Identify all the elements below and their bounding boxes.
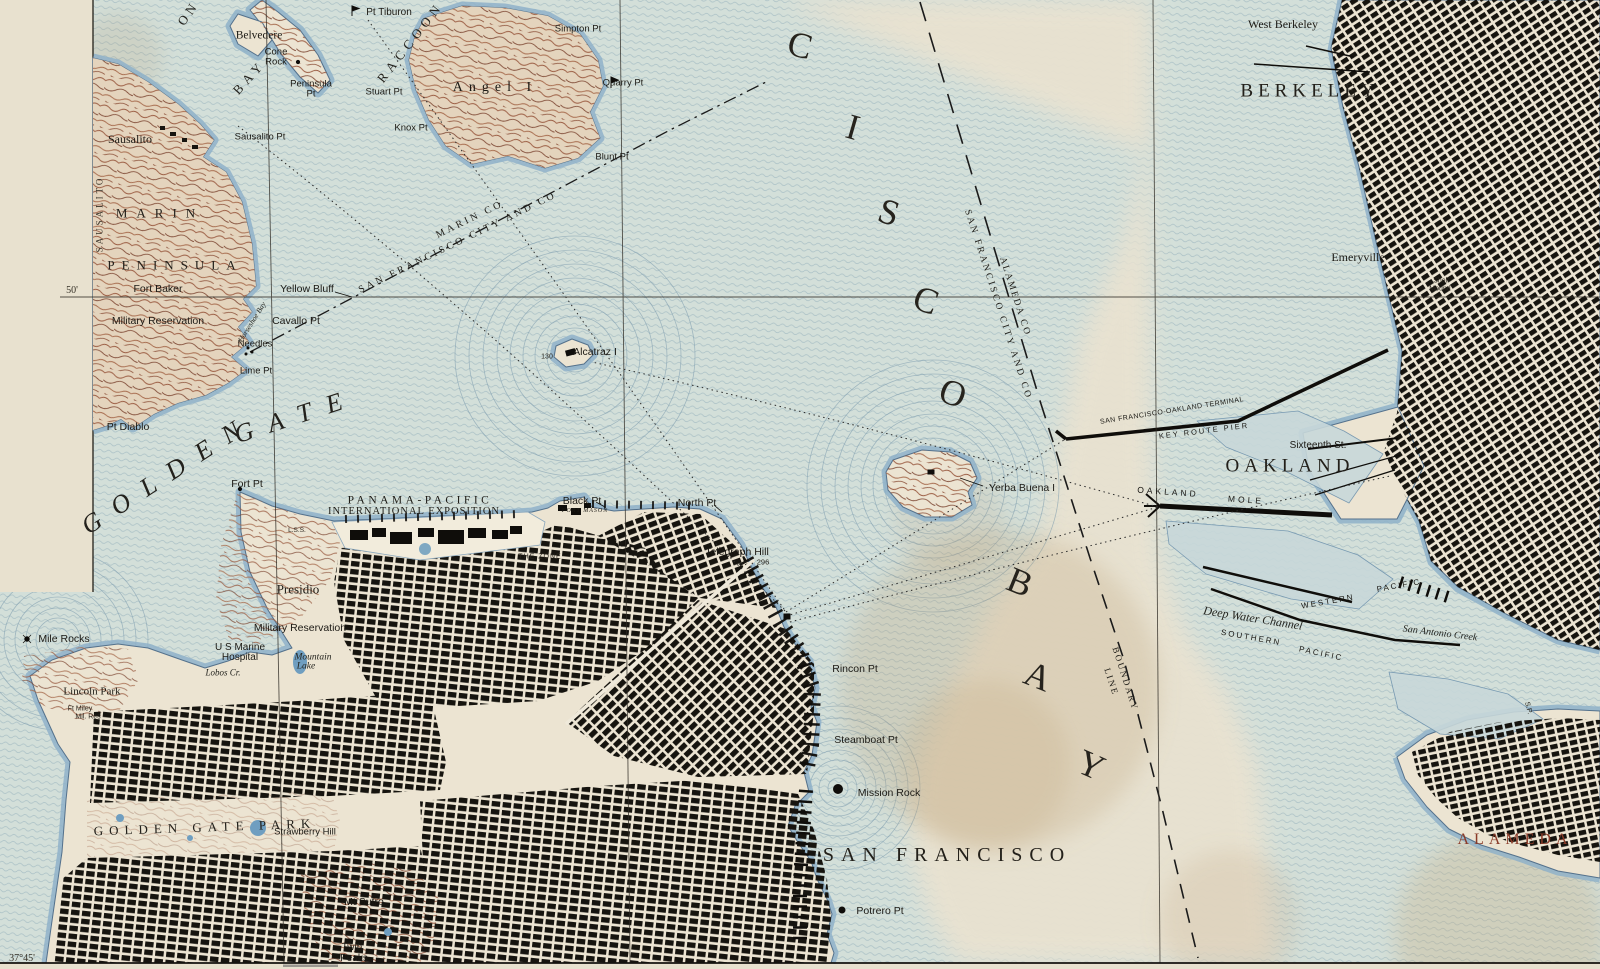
expo-lagoon <box>419 543 431 555</box>
ferry-landing <box>784 614 790 619</box>
map-canvas <box>0 0 1600 969</box>
shell-mound-symbol <box>1406 287 1409 290</box>
map-sheet: 50'37°45'SAUSALITOONBAYRACCOONPt Tiburon… <box>0 0 1600 969</box>
fort-pt-symbol <box>238 487 241 490</box>
mission-rock-symbol <box>834 785 843 794</box>
bottom-margin-strip <box>0 964 1600 969</box>
cone-rock-symbol <box>296 60 299 63</box>
yerba-buena-buildings <box>928 470 934 474</box>
imprint-smudge <box>283 965 338 968</box>
potrero-pt-symbol <box>839 907 845 913</box>
sheet-margin <box>0 0 93 592</box>
